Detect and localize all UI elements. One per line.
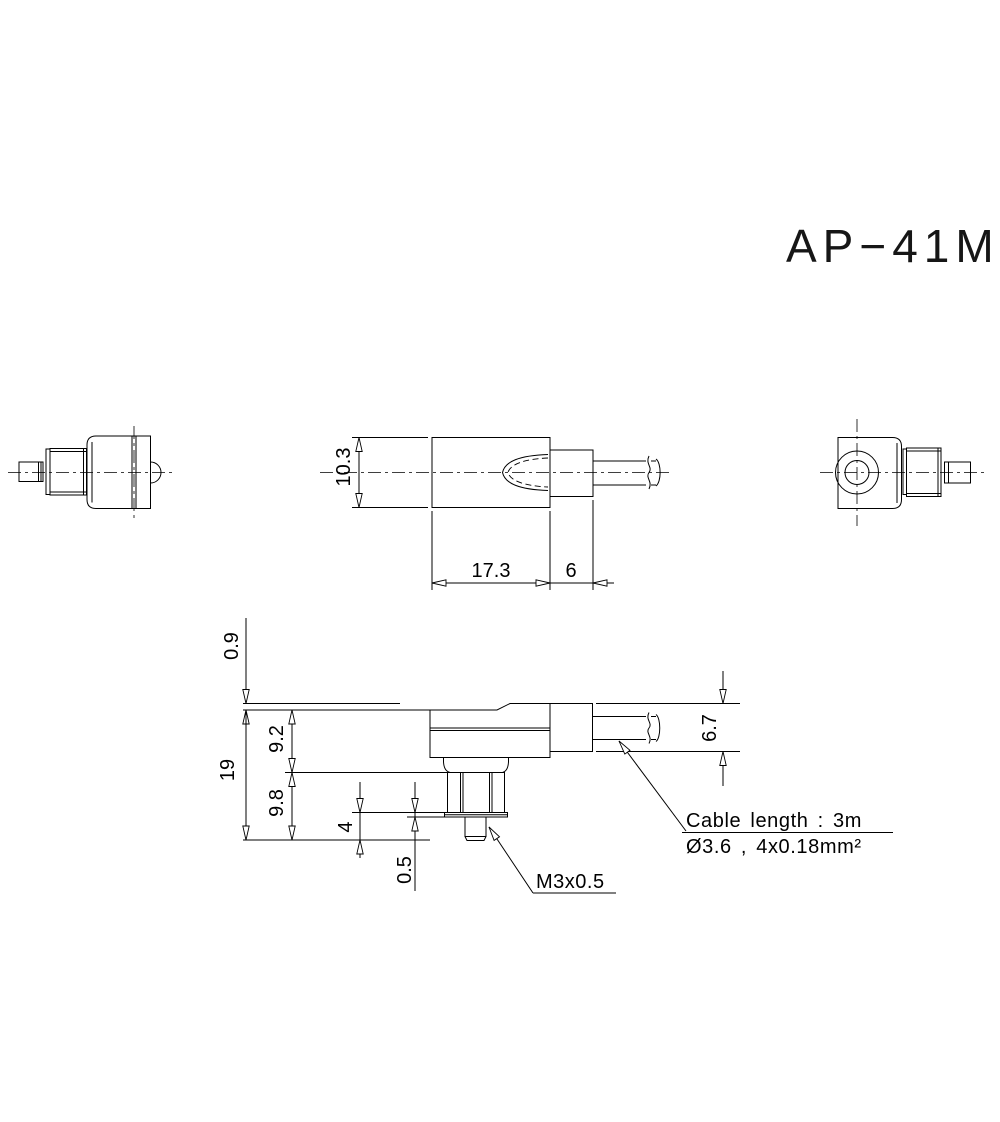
leader-arrowhead (489, 827, 500, 840)
left-end-view (8, 426, 172, 518)
dim-body-diameter: 10.3 (333, 448, 355, 487)
cable-break (648, 713, 650, 744)
strain-relief (550, 450, 593, 497)
arrowhead (356, 438, 362, 452)
arrowhead (412, 799, 418, 813)
washer (903, 449, 907, 495)
body-outline (838, 438, 902, 509)
dim-upper-height: 9.2 (266, 725, 288, 753)
drawing-sheet: AP−41M 10 (0, 0, 1000, 1122)
cable-note-line1: Cable length : 3m (686, 810, 862, 832)
side-mounting-view: 0.9 19 9.2 9.8 4 0.5 6.7 M3x0.5 (217, 618, 893, 893)
hex-nut (448, 773, 505, 813)
technical-drawing-canvas: AP−41M 10 (0, 0, 1000, 1122)
leader-arrowhead (619, 741, 630, 754)
right-end-view (820, 419, 985, 526)
dim-stud-length: 4 (335, 821, 357, 832)
arrowhead (289, 826, 295, 840)
arrowhead (432, 580, 446, 586)
washer (46, 449, 50, 495)
leader-line (619, 741, 686, 831)
thread-spec-label: M3x0.5 (536, 871, 605, 893)
dim-overall-height: 19 (217, 759, 239, 781)
arrowhead (243, 826, 249, 840)
dim-relief-length: 6 (565, 560, 576, 582)
arrowhead (720, 752, 726, 766)
hex-nut (50, 449, 87, 496)
arrowhead (536, 580, 550, 586)
arrowhead (412, 817, 418, 831)
dim-lower-height: 9.8 (266, 789, 288, 817)
arrowhead (243, 690, 249, 704)
dim-flange-offset: 0.9 (221, 632, 243, 660)
thread-stud (465, 817, 486, 837)
dim-body-length: 17.3 (472, 560, 511, 582)
stud-tip (465, 837, 486, 841)
arrowhead (357, 840, 363, 854)
arrowhead (356, 494, 362, 508)
thread-stud (19, 462, 43, 482)
arrowhead (289, 710, 295, 724)
part-number-title: AP−41M (786, 220, 1000, 272)
cable-end (656, 715, 660, 742)
dim-washer-thickness: 0.5 (394, 856, 416, 884)
strain-relief (550, 704, 593, 752)
arrowhead (289, 773, 295, 787)
arrowhead (593, 580, 607, 586)
cable-note-line2: Ø3.6 , 4x0.18mm² (686, 836, 862, 858)
arrowhead (720, 690, 726, 704)
arrowhead (357, 799, 363, 813)
arrowhead (289, 759, 295, 773)
dim-relief-height: 6.7 (699, 714, 721, 742)
front-view: 10.3 17.3 6 (320, 438, 672, 591)
